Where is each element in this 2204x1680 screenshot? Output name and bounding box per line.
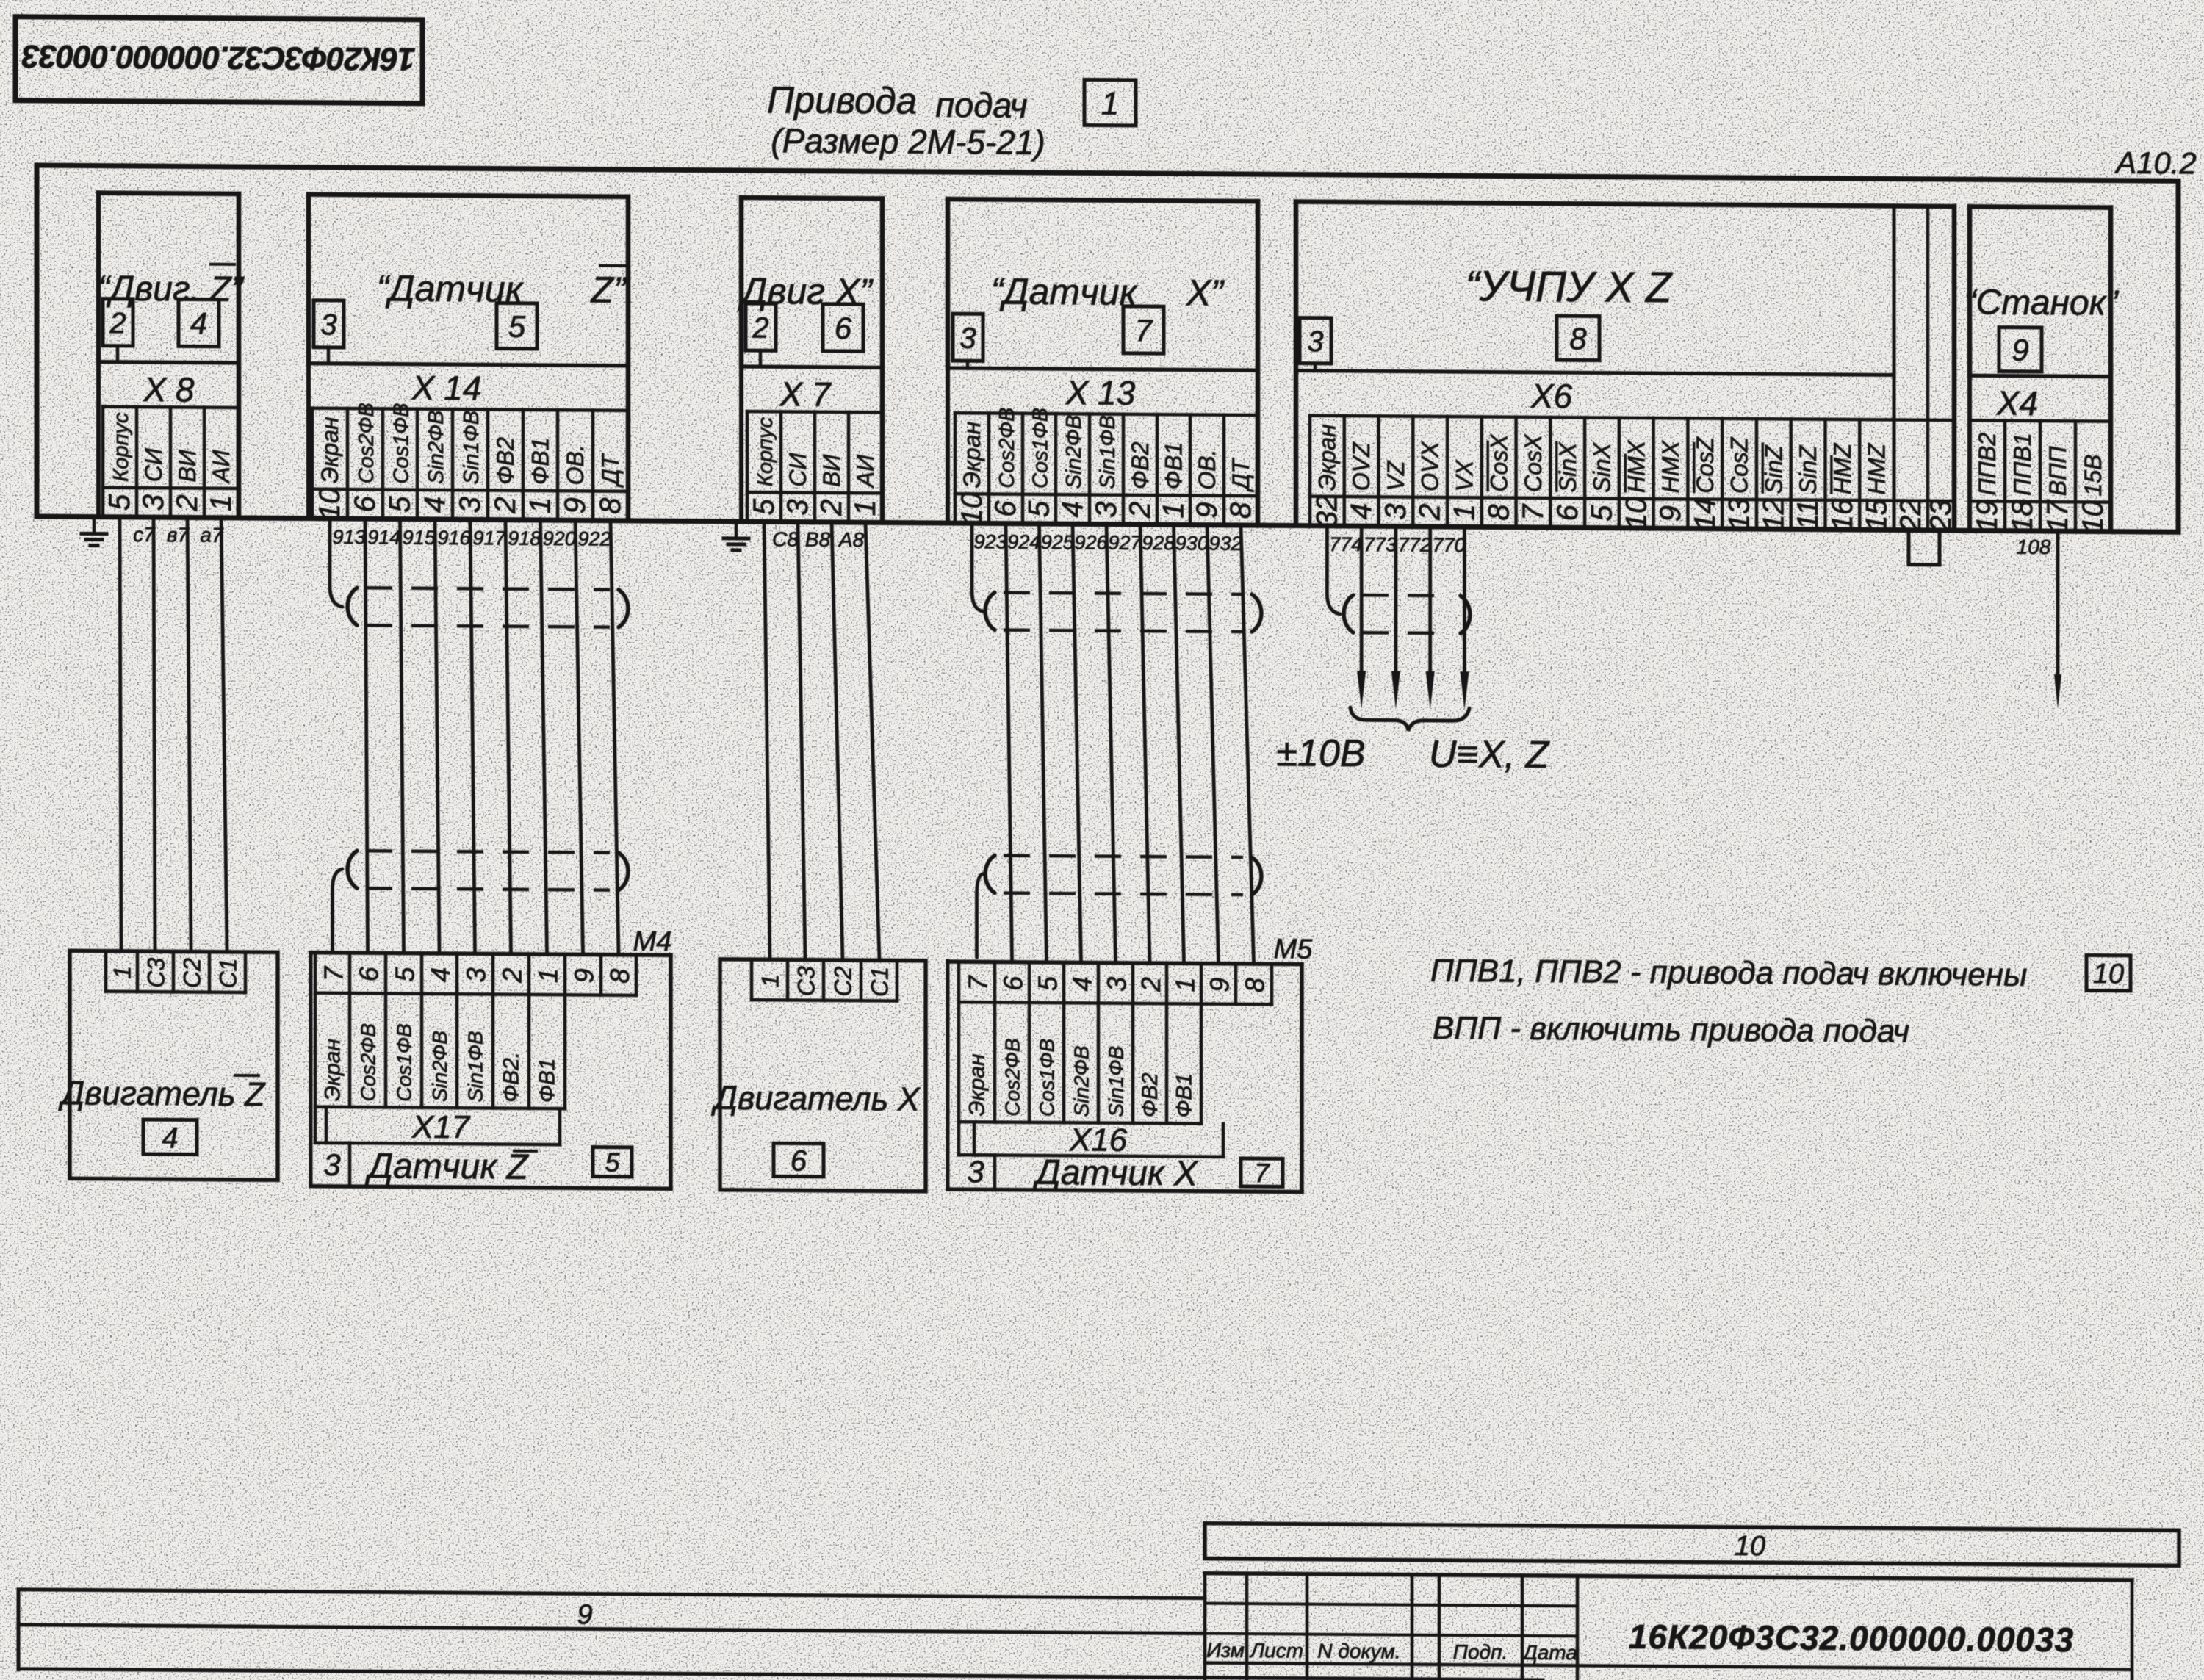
svg-text:Двигатель X: Двигатель X: [710, 1079, 921, 1118]
svg-text:1: 1: [1158, 502, 1190, 519]
svg-text:2: 2: [109, 307, 126, 339]
svg-text:5: 5: [104, 494, 136, 511]
svg-text:ВПП - включить привода подач: ВПП - включить привода подач: [1433, 1010, 1909, 1050]
svg-text:917: 917: [472, 527, 506, 549]
svg-text:916: 916: [437, 527, 471, 549]
svg-text:918: 918: [508, 527, 541, 549]
svg-text:16: 16: [1826, 498, 1859, 532]
svg-text:ДТ: ДТ: [597, 453, 624, 488]
svg-text:Sin1ФВ: Sin1ФВ: [1096, 415, 1120, 489]
svg-text:Cos1ФВ: Cos1ФВ: [1036, 1039, 1059, 1117]
svg-text:X4: X4: [1996, 384, 2038, 422]
svg-text:АИ: АИ: [852, 455, 879, 489]
svg-text:1: 1: [849, 500, 882, 516]
svg-text:5: 5: [605, 1147, 620, 1178]
svg-text:4: 4: [190, 306, 207, 341]
svg-text:подач: подач: [935, 85, 1027, 125]
svg-text:12: 12: [1757, 498, 1790, 531]
svg-text:2: 2: [1414, 504, 1447, 522]
svg-text:НМХ: НМХ: [1623, 439, 1649, 493]
svg-text:С3: С3: [793, 966, 820, 996]
svg-text:19: 19: [1971, 500, 2003, 533]
svg-text:Экран: Экран: [321, 1039, 345, 1101]
svg-text:3: 3: [323, 1147, 340, 1182]
svg-text:7: 7: [1135, 313, 1153, 347]
svg-text:6: 6: [791, 1144, 807, 1177]
svg-text:SinZ: SinZ: [1795, 444, 1821, 494]
svg-text:3: 3: [461, 967, 491, 982]
svg-text:8: 8: [605, 969, 635, 984]
svg-text:770: 770: [1433, 534, 1466, 556]
svg-text:1: 1: [1448, 504, 1480, 521]
svg-text:15: 15: [1861, 498, 1893, 532]
svg-text:22: 22: [1895, 499, 1927, 533]
svg-text:2: 2: [497, 968, 527, 984]
svg-text:ОВ.: ОВ.: [562, 444, 588, 485]
svg-text:5: 5: [384, 496, 417, 513]
svg-text:М4: М4: [633, 926, 672, 957]
svg-text:С1: С1: [867, 967, 893, 997]
svg-text:ППВ1, ППВ2 - привода подач в: ППВ1, ППВ2 - привода подач включены: [1430, 953, 2027, 993]
svg-text:32: 32: [1311, 494, 1343, 527]
svg-text:6: 6: [835, 311, 852, 345]
svg-text:6: 6: [349, 495, 381, 512]
svg-text:А8: А8: [838, 528, 865, 551]
svg-text:С1: С1: [215, 958, 242, 988]
svg-text:ФВ1: ФВ1: [527, 437, 554, 485]
svg-text:1: 1: [109, 966, 136, 979]
svg-text:9: 9: [2012, 333, 2028, 367]
svg-text:CosZ: CosZ: [1692, 436, 1718, 494]
svg-text:OVX: OVX: [1417, 441, 1444, 491]
svg-text:915: 915: [403, 527, 436, 549]
svg-text:23: 23: [1925, 500, 1957, 533]
svg-text:5: 5: [1033, 976, 1063, 991]
svg-text:7: 7: [963, 974, 993, 990]
svg-text:923: 923: [973, 530, 1006, 552]
svg-text:ФВ2: ФВ2: [492, 437, 519, 485]
svg-text:“Станок”: “Станок”: [1964, 283, 2120, 323]
svg-text:ППВ2: ППВ2: [1974, 433, 2000, 496]
svg-text:ДТ: ДТ: [1228, 457, 1254, 492]
svg-text:“Датчик: “Датчик: [991, 270, 1139, 312]
svg-text:913: 913: [332, 526, 365, 548]
svg-text:16К20Ф3С32.000000.00033: 16К20Ф3С32.000000.00033: [22, 38, 416, 77]
svg-text:772: 772: [1398, 534, 1431, 556]
svg-text:10: 10: [2093, 959, 2124, 989]
svg-text:Cos2ФВ: Cos2ФВ: [1001, 1038, 1024, 1117]
svg-text:3: 3: [782, 499, 814, 516]
svg-text:1: 1: [757, 974, 784, 987]
svg-text:Подп.: Подп.: [1453, 1640, 1508, 1664]
svg-text:10: 10: [956, 492, 988, 525]
svg-text:8: 8: [1240, 978, 1270, 992]
svg-text:16К20Ф3С32.000000.00033: 16К20Ф3С32.000000.00033: [1629, 1618, 2074, 1659]
svg-text:3: 3: [1102, 977, 1132, 992]
svg-text:ВИ: ВИ: [818, 454, 845, 487]
svg-text:2: 2: [171, 494, 204, 512]
svg-text:Двиг X”: Двиг X”: [738, 270, 874, 312]
svg-text:АИ: АИ: [208, 450, 234, 484]
svg-text:6: 6: [990, 500, 1022, 517]
svg-text:2: 2: [1124, 502, 1156, 519]
svg-text:Sin2ФВ: Sin2ФВ: [1070, 1045, 1093, 1117]
svg-text:930: 930: [1175, 532, 1209, 554]
svg-text:6: 6: [354, 966, 384, 981]
svg-text:773: 773: [1364, 533, 1397, 555]
svg-text:3: 3: [959, 322, 976, 355]
svg-text:Cos2ФВ: Cos2ФВ: [995, 407, 1019, 488]
svg-text:“УЧПУ X Z: “УЧПУ X Z: [1466, 262, 1674, 311]
svg-text:914: 914: [367, 526, 400, 548]
svg-text:10: 10: [1620, 497, 1652, 530]
svg-text:ФВ1: ФВ1: [1161, 442, 1187, 490]
svg-text:Датчик Z: Датчик Z: [364, 1147, 529, 1187]
svg-text:Корпус: Корпус: [109, 412, 133, 482]
svg-text:922: 922: [577, 527, 611, 549]
svg-text:НМZ: НМZ: [1829, 442, 1856, 494]
svg-text:С2: С2: [179, 958, 206, 988]
svg-text:Привода: Привода: [767, 79, 917, 121]
svg-text:ФВ2.: ФВ2.: [500, 1052, 524, 1103]
svg-text:НМХ: НМХ: [1657, 439, 1684, 493]
svg-text:4: 4: [1345, 503, 1377, 520]
svg-text:926: 926: [1074, 531, 1108, 553]
svg-text:ФВ1: ФВ1: [536, 1058, 560, 1103]
svg-text:Дата: Дата: [1521, 1641, 1577, 1665]
svg-text:Изм: Изм: [1206, 1639, 1245, 1662]
svg-text:3: 3: [454, 497, 486, 513]
svg-text:X 14: X 14: [411, 369, 482, 408]
svg-text:X 8: X 8: [143, 370, 194, 409]
svg-text:920: 920: [543, 527, 576, 549]
svg-text:OVZ: OVZ: [1348, 441, 1375, 491]
svg-text:925: 925: [1041, 531, 1075, 553]
svg-text:9: 9: [577, 1599, 592, 1630]
svg-text:Sin1ФВ: Sin1ФВ: [460, 411, 483, 485]
svg-text:Экран: Экран: [965, 1053, 990, 1116]
svg-text:4: 4: [1067, 976, 1098, 991]
svg-text:CosX: CosX: [1485, 433, 1512, 492]
svg-text:Лист: Лист: [1249, 1639, 1303, 1662]
svg-text:±10В: ±10В: [1276, 732, 1365, 775]
svg-text:CosX: CosX: [1520, 433, 1546, 492]
svg-text:4: 4: [1056, 501, 1089, 518]
svg-text:НМZ: НМZ: [1864, 442, 1890, 494]
svg-text:N докум.: N докум.: [1317, 1640, 1400, 1663]
svg-text:Sin2ФВ: Sin2ФВ: [428, 1031, 451, 1102]
svg-text:ППВ1: ППВ1: [2009, 433, 2036, 496]
svg-text:3: 3: [137, 494, 170, 511]
svg-text:X 7: X 7: [779, 375, 831, 414]
svg-text:“Двиг. Z”: “Двиг. Z”: [98, 270, 244, 309]
svg-text:10: 10: [314, 487, 346, 520]
svg-text:8: 8: [1225, 502, 1257, 519]
svg-text:14: 14: [1689, 497, 1721, 530]
svg-text:17: 17: [2042, 499, 2074, 533]
svg-text:A10.2: A10.2: [2114, 145, 2197, 181]
svg-text:10: 10: [1735, 1531, 1765, 1562]
svg-text:7: 7: [1517, 503, 1549, 521]
svg-text:С8: С8: [772, 527, 799, 550]
svg-text:В8: В8: [805, 528, 831, 551]
svg-text:ФВ2: ФВ2: [1127, 441, 1153, 489]
svg-text:ФВ2: ФВ2: [1138, 1072, 1162, 1117]
svg-text:4: 4: [425, 967, 455, 982]
svg-text:2: 2: [752, 312, 768, 345]
svg-text:М5: М5: [1274, 934, 1314, 965]
svg-text:VZ: VZ: [1383, 460, 1409, 491]
svg-text:ВИ: ВИ: [174, 450, 201, 483]
svg-text:SinZ: SinZ: [1760, 444, 1787, 494]
svg-text:11: 11: [1792, 500, 1824, 530]
svg-text:ОВ.: ОВ.: [1194, 449, 1220, 489]
svg-text:5: 5: [508, 309, 526, 344]
svg-text:774: 774: [1329, 533, 1362, 555]
svg-text:8: 8: [594, 497, 627, 514]
svg-text:13: 13: [1724, 498, 1756, 531]
svg-text:8: 8: [1569, 321, 1587, 356]
svg-text:9: 9: [1191, 502, 1223, 519]
svg-text:VX: VX: [1451, 459, 1477, 492]
svg-text:924: 924: [1007, 531, 1040, 553]
svg-text:X6: X6: [1530, 377, 1573, 415]
svg-text:Cos2ФВ: Cos2ФВ: [355, 403, 378, 483]
svg-text:3: 3: [1090, 501, 1123, 518]
svg-text:С3: С3: [143, 957, 170, 987]
svg-text:Sin1ФВ: Sin1ФВ: [464, 1031, 487, 1102]
svg-text:2: 2: [489, 497, 522, 514]
svg-text:Датчик X: Датчик X: [1032, 1153, 1199, 1194]
svg-text:1: 1: [1101, 85, 1119, 121]
svg-text:а7: а7: [200, 524, 224, 547]
svg-text:Sin1ФВ: Sin1ФВ: [1105, 1046, 1128, 1117]
svg-text:СИ: СИ: [785, 453, 811, 486]
svg-text:2: 2: [1136, 977, 1166, 992]
svg-text:10: 10: [2077, 500, 2109, 533]
svg-text:3: 3: [967, 1154, 984, 1189]
svg-text:Sin2ФВ: Sin2ФВ: [1062, 415, 1086, 489]
svg-text:2: 2: [815, 500, 848, 517]
svg-text:Cos1ФВ: Cos1ФВ: [390, 403, 414, 483]
svg-text:3: 3: [1380, 503, 1412, 520]
svg-text:8: 8: [1483, 504, 1515, 521]
svg-text:9: 9: [569, 968, 599, 983]
svg-text:9: 9: [1654, 505, 1687, 522]
svg-text:5: 5: [390, 967, 420, 982]
svg-text:Sin2ФВ: Sin2ФВ: [425, 410, 448, 484]
svg-text:3: 3: [1307, 325, 1323, 358]
svg-text:CosZ: CosZ: [1726, 436, 1753, 494]
svg-text:Двигатель Z: Двигатель Z: [58, 1074, 266, 1113]
svg-text:Экран: Экран: [1314, 424, 1340, 491]
svg-text:Cos1ФВ: Cos1ФВ: [393, 1023, 416, 1102]
svg-text:928: 928: [1142, 532, 1175, 554]
svg-text:ФВ1: ФВ1: [1173, 1073, 1197, 1118]
svg-text:1: 1: [205, 495, 237, 512]
svg-text:X 13: X 13: [1065, 373, 1136, 412]
svg-text:ВПП: ВПП: [2045, 445, 2071, 496]
svg-text:9: 9: [559, 497, 591, 514]
svg-text:Корпус: Корпус: [754, 417, 777, 486]
svg-text:(Размер 2М-5-21): (Размер 2М-5-21): [771, 121, 1045, 162]
svg-text:6: 6: [1552, 504, 1584, 521]
svg-text:15В: 15В: [2080, 454, 2106, 496]
svg-text:5: 5: [748, 498, 780, 515]
svg-text:U≡X, Z: U≡X, Z: [1429, 733, 1550, 776]
svg-text:С2: С2: [830, 966, 857, 996]
svg-text:9: 9: [1205, 978, 1235, 992]
svg-text:932: 932: [1209, 533, 1242, 555]
svg-text:3: 3: [320, 309, 336, 341]
svg-text:7: 7: [319, 965, 349, 981]
svg-text:1: 1: [533, 968, 563, 983]
svg-text:108: 108: [2017, 536, 2051, 558]
svg-text:18: 18: [2006, 500, 2039, 533]
svg-text:Экран: Экран: [317, 417, 343, 483]
svg-text:Cos1ФВ: Cos1ФВ: [1029, 408, 1053, 489]
svg-text:в7: в7: [167, 523, 190, 546]
svg-text:4: 4: [162, 1122, 178, 1154]
svg-text:5: 5: [1586, 505, 1618, 522]
svg-text:с7: с7: [133, 523, 156, 546]
svg-text:1: 1: [525, 497, 557, 514]
svg-text:X”: X”: [1186, 272, 1225, 313]
svg-text:СИ: СИ: [140, 448, 167, 482]
svg-text:SinX: SinX: [1589, 441, 1616, 493]
svg-text:6: 6: [998, 976, 1029, 991]
svg-text:Cos2ФВ: Cos2ФВ: [357, 1023, 380, 1102]
svg-text:Z”: Z”: [590, 269, 627, 310]
svg-text:SinX: SinX: [1555, 441, 1581, 493]
svg-text:7: 7: [1254, 1158, 1270, 1188]
svg-text:4: 4: [419, 497, 451, 513]
svg-text:X17: X17: [411, 1109, 471, 1146]
svg-text:927: 927: [1108, 532, 1142, 554]
svg-text:Экран: Экран: [959, 422, 985, 489]
svg-text:5: 5: [1023, 500, 1056, 517]
svg-text:1: 1: [1170, 977, 1200, 992]
